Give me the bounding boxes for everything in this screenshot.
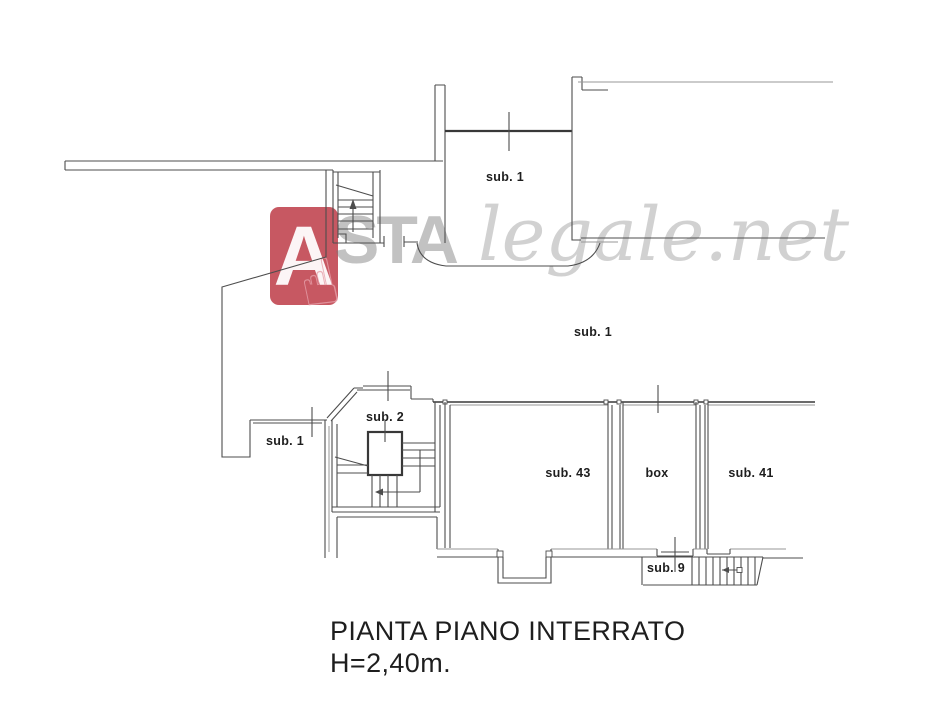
ramp-direction-arrow bbox=[722, 567, 729, 573]
room-label-box: box bbox=[645, 466, 668, 480]
plan-title: PIANTA PIANO INTERRATO H=2,40m. bbox=[330, 615, 685, 680]
lower-block-top-wall bbox=[433, 400, 815, 405]
room-sub1-top-walls bbox=[435, 77, 833, 243]
upper-perimeter-walls bbox=[65, 161, 443, 558]
room-label-sub1-middle: sub. 1 bbox=[574, 325, 612, 339]
room-label-sub1-alcove: sub. 1 bbox=[266, 434, 304, 448]
floorplan-drawing bbox=[0, 0, 933, 714]
plan-title-line1: PIANTA PIANO INTERRATO bbox=[330, 615, 685, 647]
floorplan-page: A STA legale.net ☝ bbox=[0, 0, 933, 714]
staircase-top bbox=[333, 170, 418, 247]
room-label-sub1-top: sub. 1 bbox=[486, 170, 524, 184]
room-label-sub9: sub. 9 bbox=[647, 561, 685, 575]
room-label-sub43: sub. 43 bbox=[545, 466, 590, 480]
room-label-sub41: sub. 41 bbox=[728, 466, 773, 480]
corridor-below-stairwell bbox=[337, 517, 437, 558]
ramp-passage-arc bbox=[417, 243, 600, 266]
room-label-sub2: sub. 2 bbox=[366, 410, 404, 424]
plan-title-line2: H=2,40m. bbox=[330, 647, 685, 679]
stair-direction-arrow bbox=[375, 489, 383, 496]
